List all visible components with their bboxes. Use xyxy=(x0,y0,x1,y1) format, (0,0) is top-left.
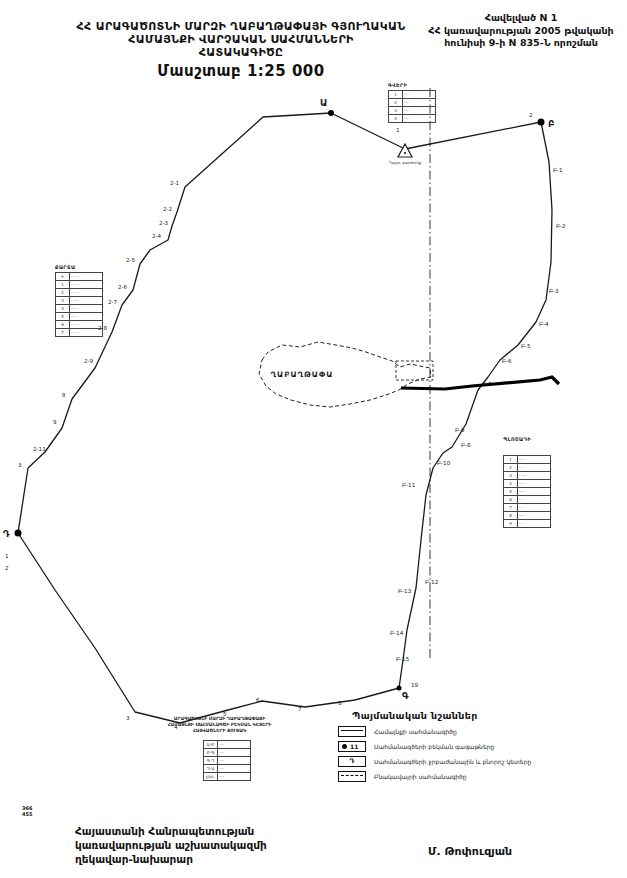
table-cell: 3 xyxy=(56,297,70,305)
table-row: 8···· xyxy=(504,512,551,520)
coords-table-right: ՊԼՈՇԱԴԻ1·· ··2·· ·3· ···4·· ··5····6·· ·… xyxy=(503,436,551,528)
table-cell: + xyxy=(56,273,70,281)
vertex-label: 8 xyxy=(338,700,342,706)
table-cell: 2 xyxy=(389,99,403,107)
vertex-label: 1 xyxy=(5,553,9,559)
vertex-label: 2-3 xyxy=(159,220,169,226)
vertex-label: 8 xyxy=(62,392,66,398)
vertex-label: 2-11 xyxy=(33,446,46,452)
table-row: +·· ··· xyxy=(56,273,103,281)
vertex-label: 7 xyxy=(298,706,302,712)
signature-title-block: Հայաստանի Հանրապետության կառավարության ա… xyxy=(75,824,267,866)
vertex-label: Բ-10 xyxy=(437,460,451,466)
table-cell: 1 xyxy=(504,456,518,464)
legend: Պայմանական նշաններ Համայնքի սահմանագիծը … xyxy=(338,710,588,786)
coords-table-left: ՔԱՐՏԱ+·· ···1··· ··2·· ···3· ····4··· ·5… xyxy=(55,264,103,337)
table-cell: Բ-Գ xyxy=(204,749,218,757)
vertex-label: Բ-14 xyxy=(390,630,404,636)
table-cell: ·· · xyxy=(518,496,551,504)
triangulation-caption: Դաշտ. բարձունք xyxy=(389,161,422,165)
vertex-label: 3 xyxy=(126,715,130,721)
table-cell: 6 xyxy=(56,321,70,329)
margin-page-numbers: 366 455 xyxy=(22,806,32,817)
legend-item-label: Սահմանագծերի բեկման գագաթները xyxy=(374,743,494,750)
legend-item-node-points: Դ Սահմանագծերի ջրբաժանային և բնորոշ կետե… xyxy=(338,756,588,767)
table-cell: ···· xyxy=(218,765,251,773)
table-cell: ·· ·· xyxy=(70,313,103,321)
boundary-node-dot xyxy=(15,530,22,537)
segment-table-caption: ԱՐԱԳԱԾՈՏՆԻ ՄԱՐԶԻ ՂԱԲԱՂԹԱՓԱՅԻ ՀԱՄԱՅՆՔԻ ՍԱ… xyxy=(152,716,287,734)
vertex-label: Բ-2 xyxy=(556,223,566,229)
coordinate-table: Ա-Բ····Բ-Գ····Գ-Դ····Դ-Ա····ընդ.···· xyxy=(203,740,251,781)
table-cell: 9 xyxy=(504,520,518,528)
vertex-label: Բ-7 xyxy=(482,381,492,387)
vertex-label: Բ-5 xyxy=(521,343,531,349)
table-cell: 3 xyxy=(504,472,518,480)
table-cell: 7 xyxy=(56,329,70,337)
vertex-label: Բ-9 xyxy=(455,427,465,433)
settlement-name-label: ՂԱԲԱՂԹԱՓԱ xyxy=(271,370,334,379)
table-cell: 4 xyxy=(56,305,70,313)
table-row: Ա-Բ···· xyxy=(204,741,251,749)
table-cell: ···· xyxy=(218,749,251,757)
dashed-line-icon xyxy=(338,771,366,782)
table-cell: 1 xyxy=(389,91,403,99)
table-cell: ընդ. xyxy=(204,773,218,781)
table-row: 4·· ·· xyxy=(504,480,551,488)
table-row: Դ-Ա···· xyxy=(204,765,251,773)
table-cell: ···· xyxy=(403,99,436,107)
table-cell: 4 xyxy=(389,115,403,123)
table-row: 3· ··· xyxy=(504,472,551,480)
table-row: 6··· ·· xyxy=(56,321,103,329)
table-row: 6·· · xyxy=(504,496,551,504)
table-row: 7· ·· xyxy=(504,504,551,512)
legend-item-label: Համայնքի սահմանագիծը xyxy=(374,728,457,735)
table-cell: Ա-Բ xyxy=(204,741,218,749)
boundary-node-dot xyxy=(397,686,402,691)
table-cell: · ··· xyxy=(518,472,551,480)
vertex-label: Բ-12 xyxy=(425,579,438,585)
legend-item-label: Բնակավայրի սահմանագիծը xyxy=(374,773,467,780)
table-cell: ·· ··· xyxy=(70,329,103,337)
signature-name: Մ. Թոփուզյան xyxy=(428,845,512,858)
table-cell: 3 xyxy=(389,107,403,115)
vertex-label: 2-4 xyxy=(152,233,162,239)
table-row: 1···· xyxy=(389,91,436,99)
vertex-label: 2-5 xyxy=(126,257,136,263)
table-row: 4··· · xyxy=(56,305,103,313)
vertex-label: Բ-15 xyxy=(396,656,410,662)
vertex-label: Բ-8 xyxy=(461,442,471,448)
vertex-label: Բ-11 xyxy=(402,482,416,488)
segment-caption-line-3: ՀԱՏՎԱԾՆԵՐԻ ՑՈՒՑԱԿ xyxy=(152,728,287,734)
table-row: 9·· · xyxy=(504,520,551,528)
table-cell: ···· xyxy=(518,512,551,520)
vertex-label: Բ-3 xyxy=(549,288,559,294)
table-cell: · ···· xyxy=(70,297,103,305)
table-cell: ···· xyxy=(218,773,251,781)
vertex-label: 19 xyxy=(411,682,419,688)
triangulation-center-dot xyxy=(404,152,406,154)
table-cell: ·· ·· xyxy=(518,456,551,464)
table-row: 5···· xyxy=(504,488,551,496)
legend-item-boundary-vertices: 11 Սահմանագծերի բեկման գագաթները xyxy=(338,741,588,752)
boundary-node-dot xyxy=(328,110,334,116)
coordinate-table: 1····2····3····4···· xyxy=(388,90,436,123)
vertex-label: 2 xyxy=(529,112,533,118)
vertex-label: 6 xyxy=(256,697,260,703)
table-row: 7·· ··· xyxy=(56,329,103,337)
coordinate-table: 1·· ··2·· ·3· ···4·· ··5····6·· ·7· ··8·… xyxy=(503,455,551,528)
vertex-label: Բ-1 xyxy=(553,167,563,173)
vertex-dot-icon: 11 xyxy=(338,741,366,752)
vertex-label: 3 xyxy=(18,462,22,468)
table-row: Գ-Դ···· xyxy=(204,757,251,765)
table-cell: ·· ·· xyxy=(518,480,551,488)
table-header: ՊԼՈՇԱԴԻ xyxy=(503,436,551,442)
legend-item-label: Սահմանագծերի ջրբաժանային և բնորոշ կետերը xyxy=(374,758,531,765)
vertex-label: 2-1 xyxy=(170,180,180,186)
table-cell: ·· · xyxy=(518,464,551,472)
table-cell: ··· ·· xyxy=(70,321,103,329)
legend-item-settlement-boundary: Բնակավայրի սահմանագիծը xyxy=(338,771,588,782)
table-cell: 5 xyxy=(504,488,518,496)
table-cell: Գ-Դ xyxy=(204,757,218,765)
table-cell: 4 xyxy=(504,480,518,488)
table-cell: ·· · xyxy=(518,520,551,528)
node-letter-icon: Դ xyxy=(338,756,366,767)
table-row: 1··· ·· xyxy=(56,281,103,289)
table-header: ՔԱՐՏԱ xyxy=(55,264,103,270)
vertex-label: Բ-6 xyxy=(502,358,512,364)
signature-title-line-1: Հայաստանի Հանրապետության xyxy=(75,824,267,838)
vertex-label: 1 xyxy=(396,127,400,133)
boundary-node-label: Գ xyxy=(402,691,409,701)
boundary-node-label: Դ xyxy=(3,529,10,539)
vertex-label: 9 xyxy=(53,419,57,425)
table-cell: · ·· xyxy=(518,504,551,512)
table-row: Բ-Գ···· xyxy=(204,749,251,757)
signature-title-line-2: կառավարության աշխատակազմի xyxy=(75,838,267,852)
table-cell: 2 xyxy=(504,464,518,472)
table-cell: ···· xyxy=(403,91,436,99)
table-cell: ···· xyxy=(218,757,251,765)
segment-table: Ա-Բ····Բ-Գ····Գ-Դ····Դ-Ա····ընդ.···· xyxy=(203,740,251,781)
table-header: ԳՎԵՐԻ xyxy=(388,82,436,88)
table-cell: 7 xyxy=(504,504,518,512)
table-cell: ··· · xyxy=(70,305,103,313)
table-cell: Դ-Ա xyxy=(204,765,218,773)
vertex-label: 2-9 xyxy=(84,358,94,364)
table-row: 2···· xyxy=(389,99,436,107)
table-cell: ···· xyxy=(403,115,436,123)
vertex-label: 2-7 xyxy=(108,299,118,305)
table-row: 3· ···· xyxy=(56,297,103,305)
vertex-label: 2 xyxy=(5,565,9,571)
signature-title-line-3: ղեկավար-նախարար xyxy=(75,852,267,866)
table-cell: ·· ··· xyxy=(70,289,103,297)
table-row: 3···· xyxy=(389,107,436,115)
legend-title: Պայմանական նշաններ xyxy=(352,710,588,721)
table-row: 2·· ··· xyxy=(56,289,103,297)
vertex-label: Բ-4 xyxy=(539,321,549,327)
map-sheet: ՀՀ ԱՐԱԳԱԾՈՏՆԻ ՄԱՐԶԻ ՂԱԲԱՂԹԱՓԱՅԻ ԳՅՈՒՂԱԿԱ… xyxy=(0,0,627,878)
table-cell: 1 xyxy=(56,281,70,289)
table-cell: 8 xyxy=(504,512,518,520)
table-cell: ···· xyxy=(403,107,436,115)
table-row: 4···· xyxy=(389,115,436,123)
boundary-node-label: Բ xyxy=(548,119,555,129)
solid-line-icon xyxy=(338,726,366,737)
vertex-label: Բ-13 xyxy=(398,588,412,594)
table-cell: 6 xyxy=(504,496,518,504)
table-cell: 2 xyxy=(56,289,70,297)
table-cell: 5 xyxy=(56,313,70,321)
table-row: ընդ.···· xyxy=(204,773,251,781)
boundary-node-label: Ա xyxy=(320,98,327,108)
vertex-label: 2-6 xyxy=(118,284,128,290)
community-boundary-line xyxy=(18,113,552,723)
coords-table-top: ԳՎԵՐԻ1····2····3····4···· xyxy=(388,82,436,123)
table-row: 2·· · xyxy=(504,464,551,472)
coordinate-table: +·· ···1··· ··2·· ···3· ····4··· ·5·· ··… xyxy=(55,272,103,337)
table-cell: ···· xyxy=(518,488,551,496)
vertex-label: 2-2 xyxy=(163,206,172,212)
boundary-node-dot xyxy=(538,119,545,126)
legend-item-community-boundary: Համայնքի սահմանագիծը xyxy=(338,726,588,737)
table-row: 1·· ·· xyxy=(504,456,551,464)
table-cell: ···· xyxy=(218,741,251,749)
table-cell: ··· ·· xyxy=(70,281,103,289)
table-row: 5·· ·· xyxy=(56,313,103,321)
table-cell: ·· ··· xyxy=(70,273,103,281)
